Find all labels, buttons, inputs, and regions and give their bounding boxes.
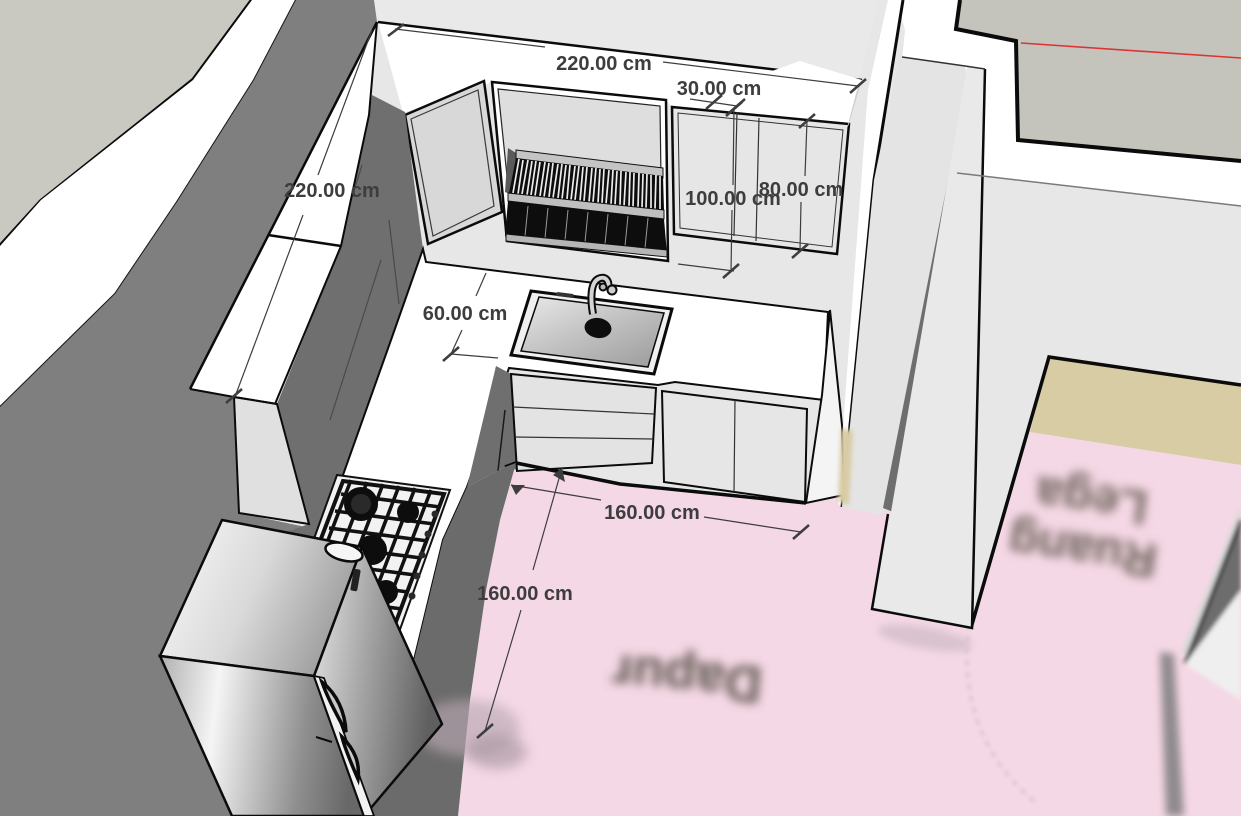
- svg-text:60.00 cm: 60.00 cm: [423, 303, 508, 325]
- svg-text:220.00 cm: 220.00 cm: [284, 180, 380, 202]
- svg-text:160.00 cm: 160.00 cm: [477, 583, 573, 605]
- svg-text:160.00 cm: 160.00 cm: [604, 502, 700, 524]
- svg-text:80.00 cm: 80.00 cm: [759, 179, 844, 201]
- svg-text:220.00 cm: 220.00 cm: [556, 53, 652, 75]
